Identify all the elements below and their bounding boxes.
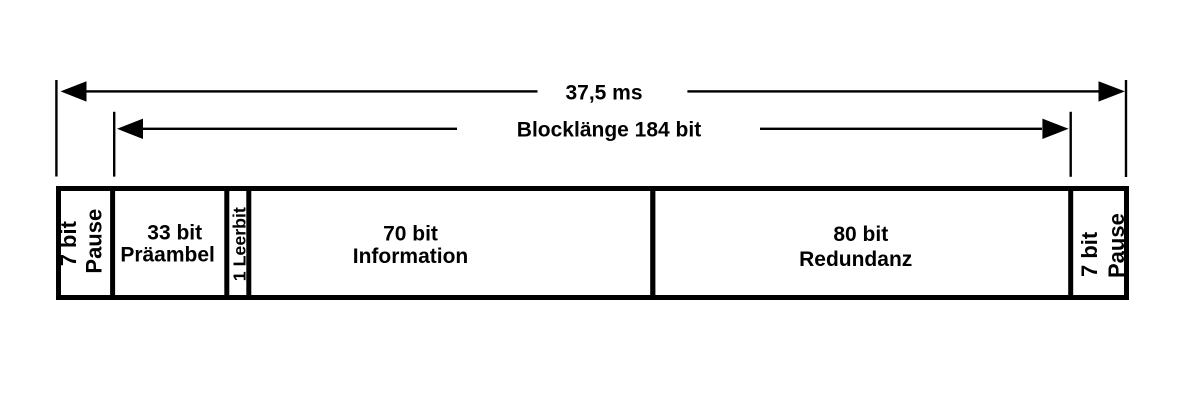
svg-text:33 bit: 33 bit (147, 222, 202, 245)
svg-text:70 bit: 70 bit (383, 223, 438, 246)
svg-text:Information: Information (353, 245, 469, 268)
svg-text:Pause: Pause (1104, 213, 1129, 278)
svg-text:Redundanz: Redundanz (799, 248, 912, 271)
svg-text:Blocklänge 184 bit: Blocklänge 184 bit (517, 119, 701, 142)
svg-text:7 bit: 7 bit (1077, 231, 1102, 277)
svg-text:80 bit: 80 bit (833, 223, 888, 246)
svg-text:Pause: Pause (81, 209, 106, 274)
svg-text:Präambel: Präambel (120, 244, 215, 267)
svg-text:37,5 ms: 37,5 ms (565, 82, 642, 105)
svg-text:7 bit: 7 bit (56, 220, 81, 266)
svg-text:1 Leerbit: 1 Leerbit (230, 207, 250, 281)
